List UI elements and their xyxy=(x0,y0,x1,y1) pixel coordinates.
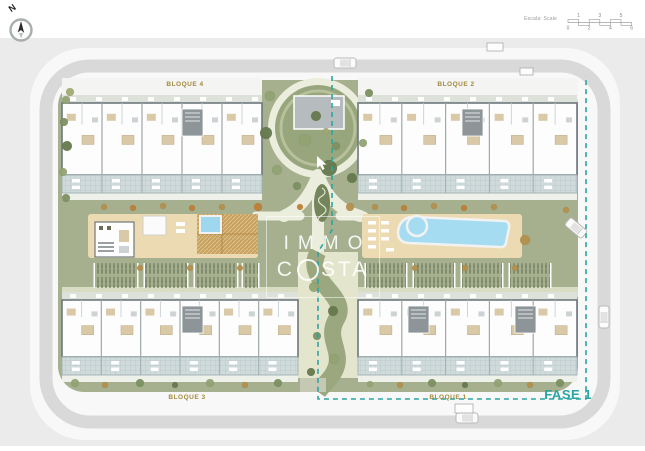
terrace-lounger xyxy=(544,368,552,372)
terrace-lounger xyxy=(369,368,377,372)
garden-post xyxy=(454,263,456,288)
room-furniture xyxy=(145,309,154,316)
car xyxy=(456,413,478,423)
terrace-lounger xyxy=(112,179,120,183)
tree xyxy=(59,168,67,176)
tree xyxy=(397,382,403,388)
terrace-lounger xyxy=(192,186,200,190)
room-furniture xyxy=(555,326,567,335)
roof-unit xyxy=(522,294,528,298)
room-fixture xyxy=(92,117,98,122)
tree xyxy=(365,89,373,97)
terrace-lounger xyxy=(152,186,160,190)
scale-bar: Escala: Scale 1350246 xyxy=(524,7,639,31)
utility-box xyxy=(520,68,533,75)
terrace-lounger xyxy=(190,361,198,365)
roof-unit xyxy=(252,97,258,101)
terrace-lounger xyxy=(232,186,240,190)
building-walk xyxy=(358,375,577,382)
scale-tick-top: 5 xyxy=(620,13,623,19)
room-fixture xyxy=(566,117,572,122)
room-furniture xyxy=(122,135,134,144)
scale-tick-bottom: 0 xyxy=(567,26,570,32)
garden-post xyxy=(406,263,408,288)
utility-box xyxy=(487,43,503,51)
terrace-strip xyxy=(358,357,577,375)
roof-unit xyxy=(392,97,398,101)
terrace-lounger xyxy=(369,186,377,190)
roof-strip xyxy=(358,95,577,103)
room-furniture xyxy=(511,135,523,144)
tree xyxy=(189,205,195,211)
roof-unit xyxy=(418,294,424,298)
roof-unit xyxy=(522,97,528,101)
tree xyxy=(563,207,569,213)
roof-unit xyxy=(366,294,372,298)
roof-unit xyxy=(278,294,284,298)
roof-unit xyxy=(366,97,372,101)
tree xyxy=(254,203,262,211)
room-fixture xyxy=(212,117,218,122)
room-fixture xyxy=(288,311,294,316)
room-fixture xyxy=(172,117,178,122)
scale-bar-label: Escala: Scale xyxy=(524,16,557,22)
terrace-lounger xyxy=(151,361,159,365)
room-fixture xyxy=(249,311,255,316)
tree xyxy=(462,382,468,388)
tree xyxy=(130,205,136,211)
clubhouse-bed xyxy=(119,230,129,242)
garden-post xyxy=(258,263,260,288)
room-furniture xyxy=(67,114,76,121)
stair-core xyxy=(182,306,203,333)
tree xyxy=(60,118,68,126)
tree xyxy=(237,265,243,271)
stair-core xyxy=(462,109,483,136)
roof-unit xyxy=(470,294,476,298)
room-fixture xyxy=(435,311,441,316)
roof-unit xyxy=(418,97,424,101)
garden-post xyxy=(509,263,511,288)
tree xyxy=(428,379,436,387)
terrace-lounger xyxy=(151,368,159,372)
room-fixture xyxy=(252,117,258,122)
terrace-lounger xyxy=(269,361,277,365)
room-furniture xyxy=(147,114,156,121)
garden-post xyxy=(502,263,504,288)
tree xyxy=(462,265,468,271)
north-compass: N xyxy=(2,2,42,48)
room-fixture xyxy=(435,117,441,122)
tree xyxy=(187,265,193,271)
label-bloque-2: BLOQUE 2 xyxy=(437,81,474,88)
tree xyxy=(372,204,378,210)
roof-unit xyxy=(174,294,180,298)
stair-core xyxy=(408,306,429,333)
tree xyxy=(102,382,108,388)
terrace-lounger xyxy=(413,186,421,190)
tree xyxy=(160,203,166,209)
roof-unit xyxy=(200,294,206,298)
terrace-lounger xyxy=(457,186,465,190)
scale-tick-top: 1 xyxy=(577,13,580,19)
terrace-lounger xyxy=(457,368,465,372)
spa-circle xyxy=(407,216,427,236)
building-bloque-1 xyxy=(358,292,577,382)
roof-unit xyxy=(444,97,450,101)
scale-tick-bottom: 4 xyxy=(609,26,612,32)
clubhouse-furniture xyxy=(107,226,111,230)
terrace-lounger xyxy=(544,186,552,190)
terrace-lounger xyxy=(457,179,465,183)
terrace-lounger xyxy=(369,179,377,183)
tree xyxy=(412,265,418,271)
scale-segment xyxy=(589,20,600,23)
room-fixture xyxy=(92,311,98,316)
deck-lounger xyxy=(176,222,185,226)
garden-post xyxy=(461,263,463,288)
roof-unit xyxy=(392,294,398,298)
room-furniture xyxy=(451,114,460,121)
apron-top-left xyxy=(62,78,262,96)
tree xyxy=(172,382,178,388)
label-fase-1: FASE 1 xyxy=(544,387,592,402)
terrace-lounger xyxy=(500,368,508,372)
terrace-lounger xyxy=(111,361,119,365)
room-furniture xyxy=(407,114,416,121)
terrace-lounger xyxy=(229,368,237,372)
tree xyxy=(242,382,248,388)
terrace-lounger xyxy=(413,361,421,365)
building-bloque-4 xyxy=(62,95,262,200)
roof-unit xyxy=(148,294,154,298)
scale-tick-bottom: 6 xyxy=(630,26,633,32)
room-fixture xyxy=(391,311,397,316)
tree xyxy=(274,379,282,387)
car xyxy=(334,58,356,68)
room-furniture xyxy=(202,135,214,144)
room-furniture xyxy=(468,135,480,144)
terrace-lounger xyxy=(500,179,508,183)
roof-unit xyxy=(470,97,476,101)
tree xyxy=(332,142,340,150)
terrace-lounger xyxy=(500,361,508,365)
terrace-lounger xyxy=(544,179,552,183)
tree xyxy=(62,194,70,202)
roof-unit xyxy=(174,97,180,101)
clubhouse-furniture xyxy=(99,226,103,230)
tree xyxy=(346,203,354,211)
tree xyxy=(313,332,321,340)
roof-unit xyxy=(96,97,102,101)
tree xyxy=(137,265,143,271)
room-furniture xyxy=(82,135,94,144)
room-fixture xyxy=(132,117,138,122)
terrace-lounger xyxy=(269,368,277,372)
tree xyxy=(491,204,497,210)
scale-segment xyxy=(568,20,579,23)
label-bloque-4: BLOQUE 4 xyxy=(166,81,203,88)
stair-core xyxy=(182,109,203,136)
roof-unit xyxy=(496,97,502,101)
tree xyxy=(329,354,339,364)
roof-unit xyxy=(252,294,258,298)
site-plan-canvas: IMMO COSTA BLOQUE 4 BLOQUE 2 BLOQUE 3 BL… xyxy=(0,0,645,451)
tree xyxy=(321,160,337,176)
room-furniture xyxy=(239,326,251,335)
roof-unit xyxy=(148,97,154,101)
tree xyxy=(556,379,564,387)
terrace-lounger xyxy=(192,179,200,183)
tree xyxy=(401,205,407,211)
stair-core xyxy=(515,306,536,333)
building-walk xyxy=(358,193,577,200)
tree xyxy=(260,127,272,139)
tree xyxy=(359,139,367,147)
terrace-lounger xyxy=(369,361,377,365)
garden-post xyxy=(144,263,146,288)
terrace-lounger xyxy=(72,368,80,372)
tree xyxy=(461,205,467,211)
roof-unit xyxy=(70,97,76,101)
terrace-lounger xyxy=(152,179,160,183)
scale-tick-bottom: 2 xyxy=(588,26,591,32)
roof-unit xyxy=(226,294,232,298)
room-furniture xyxy=(224,309,233,316)
room-furniture xyxy=(278,326,290,335)
tree xyxy=(293,182,301,190)
roof-unit xyxy=(122,294,128,298)
label-bloque-1: BLOQUE 1 xyxy=(429,394,466,401)
car xyxy=(599,306,609,328)
roof-unit xyxy=(226,97,232,101)
room-fixture xyxy=(478,311,484,316)
room-furniture xyxy=(263,309,272,316)
tree xyxy=(347,173,357,183)
roof-unit xyxy=(96,294,102,298)
scale-segment xyxy=(610,20,621,23)
room-furniture xyxy=(106,309,115,316)
garden-post xyxy=(550,263,552,288)
room-fixture xyxy=(391,117,397,122)
building-walk xyxy=(62,375,298,382)
building-bloque-2 xyxy=(358,95,577,200)
roof-unit xyxy=(122,97,128,101)
room-fixture xyxy=(131,311,137,316)
deck-lounger xyxy=(176,229,185,233)
room-furniture xyxy=(227,114,236,121)
clubhouse-counter xyxy=(119,246,129,253)
room-furniture xyxy=(538,114,547,121)
tree xyxy=(520,235,530,245)
room-furniture xyxy=(555,135,567,144)
room-furniture xyxy=(160,326,172,335)
roof-strip xyxy=(358,292,577,300)
tree xyxy=(136,379,144,387)
tree xyxy=(311,111,321,121)
tree xyxy=(431,203,437,209)
tree xyxy=(527,382,533,388)
room-furniture xyxy=(495,309,504,316)
terrace-strip xyxy=(62,175,262,193)
terrace-strip xyxy=(358,175,577,193)
terrace-lounger xyxy=(413,368,421,372)
roof-unit xyxy=(70,294,76,298)
roof-unit xyxy=(200,97,206,101)
site-plan-drawing xyxy=(0,0,645,451)
tree xyxy=(328,306,338,316)
room-furniture xyxy=(121,326,133,335)
terrace-lounger xyxy=(232,179,240,183)
terrace-lounger xyxy=(72,179,80,183)
terrace-lounger xyxy=(457,361,465,365)
room-furniture xyxy=(82,326,94,335)
room-furniture xyxy=(451,309,460,316)
terrace-lounger xyxy=(190,368,198,372)
room-furniture xyxy=(162,135,174,144)
tree xyxy=(219,204,225,210)
room-furniture xyxy=(107,114,116,121)
tree xyxy=(307,368,315,376)
tree xyxy=(101,204,107,210)
tree xyxy=(66,88,74,96)
scale-bar-graphic: 1350246 xyxy=(561,7,639,31)
tree xyxy=(297,204,303,210)
shade-canopy xyxy=(143,216,166,235)
room-furniture xyxy=(363,114,372,121)
terrace-lounger xyxy=(112,186,120,190)
room-fixture xyxy=(170,311,176,316)
corridor-ramp xyxy=(300,378,326,392)
room-fixture xyxy=(522,117,528,122)
room-furniture xyxy=(363,309,372,316)
terrace-lounger xyxy=(544,361,552,365)
garden-post xyxy=(94,263,96,288)
tree xyxy=(494,379,502,387)
scale-tick-top: 3 xyxy=(598,13,601,19)
tree xyxy=(71,379,79,387)
building-walk xyxy=(62,193,262,200)
terrace-lounger xyxy=(72,186,80,190)
building-bloque-3 xyxy=(62,292,298,382)
room-furniture xyxy=(495,114,504,121)
label-bloque-3: BLOQUE 3 xyxy=(168,394,205,401)
roof-unit xyxy=(548,97,554,101)
room-furniture xyxy=(424,135,436,144)
garden-post xyxy=(365,263,367,288)
tree xyxy=(62,141,72,151)
terrace-lounger xyxy=(229,361,237,365)
roof-unit xyxy=(548,294,554,298)
utility-box xyxy=(455,404,473,413)
terrace-lounger xyxy=(111,368,119,372)
plunge-pool xyxy=(200,216,221,233)
room-furniture xyxy=(468,326,480,335)
tree xyxy=(265,91,275,101)
tree xyxy=(272,165,282,175)
terrace-lounger xyxy=(500,186,508,190)
garden-post xyxy=(194,263,196,288)
room-fixture xyxy=(210,311,216,316)
corridor-path xyxy=(298,252,358,378)
tree xyxy=(206,379,214,387)
room-furniture xyxy=(380,135,392,144)
tree xyxy=(62,96,70,104)
roof-unit xyxy=(444,294,450,298)
tree xyxy=(512,265,518,271)
room-furniture xyxy=(538,309,547,316)
terrace-lounger xyxy=(72,361,80,365)
room-furniture xyxy=(242,135,254,144)
tree xyxy=(323,128,329,134)
tree xyxy=(367,381,373,387)
room-furniture xyxy=(380,326,392,335)
terrace-lounger xyxy=(413,179,421,183)
room-furniture xyxy=(67,309,76,316)
roof-unit xyxy=(496,294,502,298)
tree xyxy=(299,134,311,146)
room-fixture xyxy=(566,311,572,316)
